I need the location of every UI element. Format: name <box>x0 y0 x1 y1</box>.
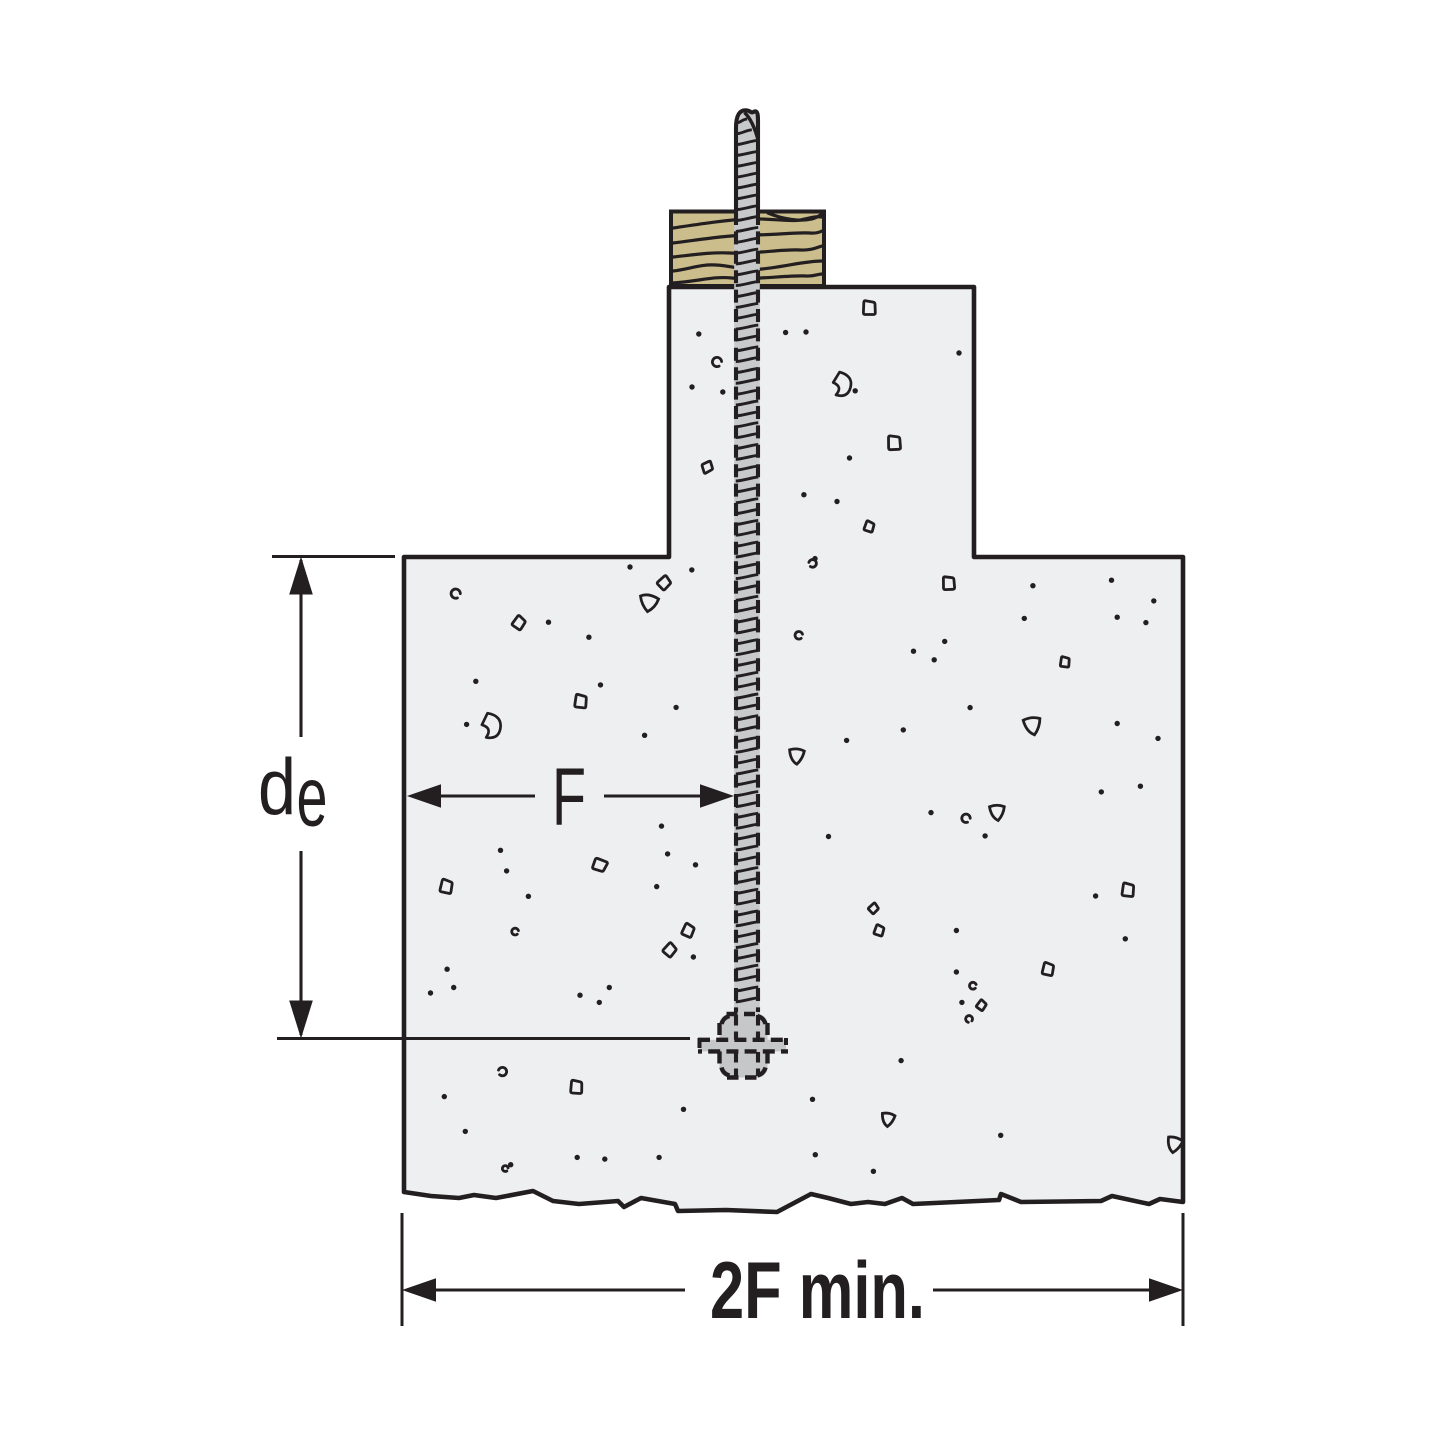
svg-text:F: F <box>552 752 586 843</box>
svg-text:d: d <box>258 743 296 832</box>
svg-text:e: e <box>297 750 328 844</box>
svg-text:2F min.: 2F min. <box>710 1246 925 1336</box>
